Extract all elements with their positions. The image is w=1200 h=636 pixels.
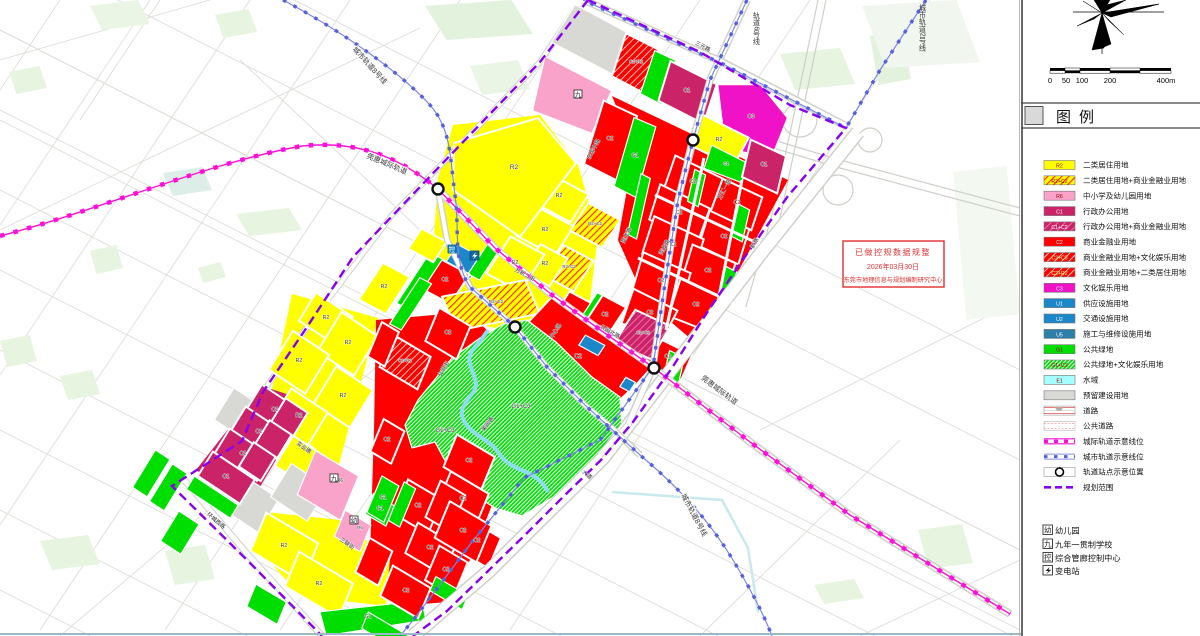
svg-text:轨道站点示意位置: 轨道站点示意位置 xyxy=(1083,467,1144,477)
svg-text:C1: C1 xyxy=(1056,210,1063,216)
svg-text:R2: R2 xyxy=(323,315,330,321)
svg-text:公共绿地: 公共绿地 xyxy=(1083,344,1114,354)
svg-text:轨道6号线: 轨道6号线 xyxy=(753,11,762,45)
svg-text:C2+R2: C2+R2 xyxy=(398,358,412,363)
svg-text:C1+C2: C1+C2 xyxy=(1051,225,1067,231)
svg-text:公共绿地+文化娱乐用地: 公共绿地+文化娱乐用地 xyxy=(1083,359,1164,369)
svg-text:0: 0 xyxy=(1048,76,1052,85)
svg-text:C2: C2 xyxy=(460,528,467,534)
svg-text:R2: R2 xyxy=(281,543,288,549)
svg-text:R2: R2 xyxy=(510,164,519,171)
svg-text:R2+C2: R2+C2 xyxy=(1051,179,1067,185)
svg-text:道路: 道路 xyxy=(1083,405,1099,415)
svg-text:九年一贯制学校: 九年一贯制学校 xyxy=(1055,539,1112,549)
svg-text:城市轨道示意线位: 城市轨道示意线位 xyxy=(1083,451,1144,461)
svg-text:C2: C2 xyxy=(415,503,422,509)
svg-text:东莞市地理信息与规划编制研究中心: 东莞市地理信息与规划编制研究中心 xyxy=(844,276,943,284)
svg-text:二类居住用地+商业金融业用地: 二类居住用地+商业金融业用地 xyxy=(1083,175,1187,185)
svg-text:C2: C2 xyxy=(734,200,741,206)
svg-text:G1: G1 xyxy=(723,161,730,166)
svg-text:C2: C2 xyxy=(445,330,452,336)
svg-text:C1: C1 xyxy=(223,474,230,480)
svg-text:R6: R6 xyxy=(1056,194,1063,200)
svg-text:C2: C2 xyxy=(658,278,665,284)
svg-text:C2: C2 xyxy=(676,210,683,216)
svg-text:C2: C2 xyxy=(460,496,467,502)
svg-text:R2: R2 xyxy=(381,284,388,290)
svg-text:R2: R2 xyxy=(345,340,352,346)
svg-text:50: 50 xyxy=(1062,76,1070,85)
svg-text:G1: G1 xyxy=(632,153,639,159)
svg-text:幼: 幼 xyxy=(1044,525,1052,535)
svg-text:幼儿园: 幼儿园 xyxy=(1055,525,1080,535)
svg-text:R2: R2 xyxy=(340,393,347,399)
svg-text:C3: C3 xyxy=(747,114,754,120)
svg-text:C2: C2 xyxy=(403,588,410,594)
svg-text:C2+R2: C2+R2 xyxy=(629,59,643,64)
svg-text:G1+C3: G1+C3 xyxy=(1051,363,1068,369)
svg-text:R2: R2 xyxy=(316,581,323,587)
svg-text:C2: C2 xyxy=(574,354,582,360)
svg-text:综合管廊控制中心: 综合管廊控制中心 xyxy=(1055,553,1121,563)
svg-text:交通设施用地: 交通设施用地 xyxy=(1083,313,1129,323)
svg-text:R2: R2 xyxy=(296,413,303,419)
svg-text:C2: C2 xyxy=(690,179,697,185)
svg-text:C2: C2 xyxy=(602,312,609,318)
svg-text:400m: 400m xyxy=(1157,76,1176,85)
svg-text:城际轨道示意线位: 城际轨道示意线位 xyxy=(1083,436,1144,446)
svg-text:行政办公用地+商业金融业用地: 行政办公用地+商业金融业用地 xyxy=(1083,221,1187,231)
svg-text:规划范围: 规划范围 xyxy=(1083,482,1113,492)
svg-text:C2: C2 xyxy=(384,437,391,443)
svg-text:C1: C1 xyxy=(272,407,279,413)
svg-text:G1: G1 xyxy=(380,495,387,501)
svg-text:C2: C2 xyxy=(474,538,481,544)
svg-text:C2: C2 xyxy=(693,302,700,308)
svg-text:图例: 图例 xyxy=(1056,109,1102,126)
svg-text:C2: C2 xyxy=(705,268,712,274)
svg-text:幼: 幼 xyxy=(351,516,358,525)
svg-text:已做控规数据规整: 已做控规数据规整 xyxy=(855,247,931,257)
svg-text:R2: R2 xyxy=(716,137,723,143)
svg-text:行政办公用地: 行政办公用地 xyxy=(1083,206,1129,216)
svg-text:商业金融业用地: 商业金融业用地 xyxy=(1083,236,1137,246)
svg-text:C1: C1 xyxy=(240,451,247,457)
svg-text:九: 九 xyxy=(1044,540,1052,549)
svg-text:R6: R6 xyxy=(357,525,363,530)
svg-text:C2: C2 xyxy=(442,277,449,283)
svg-text:R2+C2: R2+C2 xyxy=(562,264,576,269)
svg-text:C2+R2: C2+R2 xyxy=(1051,271,1067,277)
svg-text:G1: G1 xyxy=(377,506,384,512)
svg-text:100: 100 xyxy=(1076,76,1089,85)
svg-text:R2+C2: R2+C2 xyxy=(588,221,602,226)
svg-text:R2: R2 xyxy=(542,261,549,267)
svg-text:C2: C2 xyxy=(647,310,654,316)
svg-text:R2: R2 xyxy=(556,193,563,199)
svg-text:C2: C2 xyxy=(607,136,614,142)
svg-text:施工与维修设施用地: 施工与维修设施用地 xyxy=(1083,329,1152,339)
svg-text:E1: E1 xyxy=(1056,378,1062,384)
svg-text:九: 九 xyxy=(331,474,338,483)
svg-text:G1: G1 xyxy=(365,614,372,620)
svg-text:C1+C2: C1+C2 xyxy=(636,330,650,335)
svg-text:C2: C2 xyxy=(665,354,672,360)
svg-text:R2: R2 xyxy=(512,260,519,266)
svg-text:C2+C3: C2+C3 xyxy=(1051,256,1067,262)
svg-text:二类居住用地: 二类居住用地 xyxy=(1083,160,1129,170)
svg-text:文化娱乐用地: 文化娱乐用地 xyxy=(1083,283,1129,293)
svg-text:G1+C3: G1+C3 xyxy=(511,404,531,410)
svg-text:C1: C1 xyxy=(684,88,691,94)
svg-text:控: 控 xyxy=(1044,552,1052,562)
svg-text:九: 九 xyxy=(575,90,582,99)
svg-text:城市轨道2号线: 城市轨道2号线 xyxy=(919,4,928,51)
svg-text:水域: 水域 xyxy=(1083,375,1099,385)
svg-text:G1: G1 xyxy=(1056,348,1063,354)
svg-text:商业金融业用地+二类居住用地: 商业金融业用地+二类居住用地 xyxy=(1083,267,1187,277)
svg-text:R2: R2 xyxy=(542,227,549,233)
svg-text:C2: C2 xyxy=(466,458,473,464)
svg-text:C2: C2 xyxy=(427,545,434,551)
svg-text:R2: R2 xyxy=(296,358,303,364)
svg-text:供应设施用地: 供应设施用地 xyxy=(1083,298,1129,308)
svg-text:U2: U2 xyxy=(1056,317,1063,323)
svg-text:商业金融业用地+文化娱乐用地: 商业金融业用地+文化娱乐用地 xyxy=(1083,252,1187,262)
svg-text:变电站: 变电站 xyxy=(1055,566,1080,576)
svg-text:C1: C1 xyxy=(256,429,263,435)
svg-text:公共道路: 公共道路 xyxy=(1083,421,1114,431)
svg-text:C1: C1 xyxy=(761,162,768,168)
svg-text:R2+C2: R2+C2 xyxy=(489,299,504,304)
svg-text:U5: U5 xyxy=(1056,332,1063,338)
svg-text:2026年03月30日: 2026年03月30日 xyxy=(867,262,919,271)
svg-text:U1: U1 xyxy=(1056,302,1063,308)
svg-text:G1+C3: G1+C3 xyxy=(435,428,455,434)
svg-text:C2: C2 xyxy=(1056,240,1063,246)
svg-text:中小学及幼儿园用地: 中小学及幼儿园用地 xyxy=(1083,190,1152,200)
svg-text:C2: C2 xyxy=(721,234,728,240)
svg-text:预留建设用地: 预留建设用地 xyxy=(1083,390,1129,400)
svg-text:控: 控 xyxy=(449,245,456,254)
svg-text:C3: C3 xyxy=(1056,286,1063,292)
svg-text:C2: C2 xyxy=(443,567,450,573)
svg-text:R2: R2 xyxy=(1056,164,1063,170)
svg-text:200: 200 xyxy=(1104,76,1117,85)
